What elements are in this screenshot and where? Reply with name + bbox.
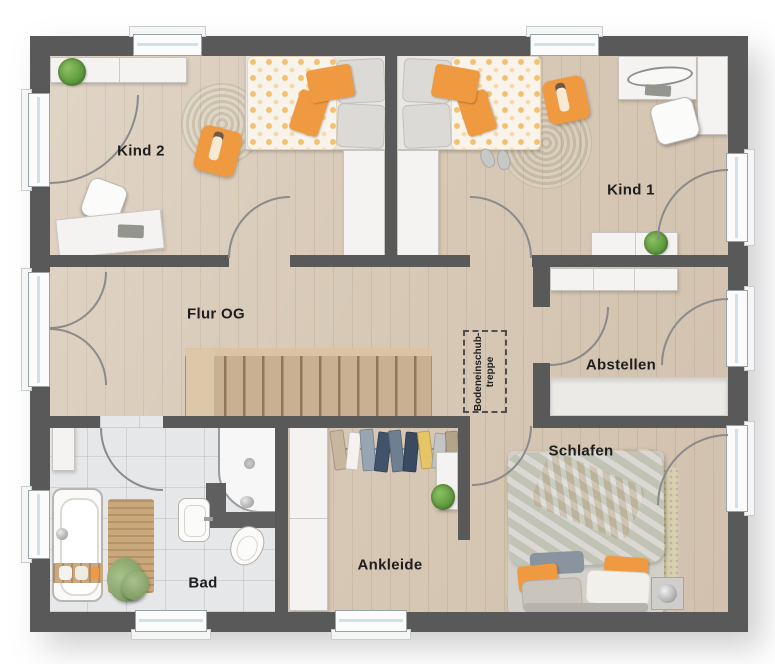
- wall-flur-abstellen-south: [533, 363, 550, 428]
- room-label-kind1: Kind 1: [607, 183, 655, 198]
- basin-faucet: [204, 517, 213, 521]
- abstellen-shelf: [550, 377, 728, 416]
- kind1-bed: [397, 53, 539, 150]
- staircase-landing: [186, 349, 214, 416]
- bathroom-cabinet: [52, 425, 75, 471]
- ankleide-plant: [431, 484, 455, 510]
- window-ankleide-bottom: [335, 610, 407, 632]
- room-label-abstellen: Abstellen: [586, 358, 656, 373]
- window-flur-left: [28, 272, 50, 387]
- kind2-pillow: [336, 103, 386, 149]
- kind2-wardrobe: [343, 150, 385, 257]
- sideboard-divider: [593, 269, 594, 290]
- ankleide-wardrobe: [289, 424, 328, 611]
- wall-ankleide-schlafen: [458, 416, 470, 540]
- caddy-towel: [59, 566, 72, 580]
- nightstand: [651, 577, 684, 610]
- attic-ladder-outline: Bodeneinschub- treppe: [463, 330, 507, 413]
- schlafen-double-bed: [508, 451, 664, 614]
- wall-flur-abstellen-north: [533, 267, 550, 307]
- kind2-bed: [245, 53, 387, 150]
- window-abstellen-right: [726, 290, 748, 367]
- basin-bowl: [184, 505, 206, 537]
- shower-drain: [244, 458, 255, 469]
- wall-kind2-kind1-south-mid: [290, 255, 470, 267]
- wall-kind2-kind1-divider: [385, 56, 397, 267]
- attic-ladder-label: Bodeneinschub- treppe: [473, 332, 497, 410]
- wall-kind2-south-west: [48, 255, 229, 267]
- nightstand-lamp: [658, 584, 677, 603]
- caddy-item: [91, 567, 99, 579]
- kind2-laptop: [118, 224, 144, 238]
- wardrobe-divider: [290, 518, 327, 519]
- kind2-plant: [58, 58, 86, 86]
- wall-abstellen-schlafen: [550, 416, 728, 428]
- room-label-kind2: Kind 2: [117, 144, 165, 159]
- wall-flur-south: [163, 416, 458, 428]
- shower-fixture: [240, 496, 254, 508]
- staircase-top-edge: [185, 348, 432, 356]
- caddy-towel: [75, 566, 88, 580]
- kind1-desk-return: [697, 56, 728, 135]
- window-kind1-right: [726, 153, 748, 242]
- window-kind1-top: [530, 34, 599, 56]
- room-label-ankleide: Ankleide: [358, 558, 423, 573]
- bathroom-door-threshold: [100, 416, 163, 428]
- sideboard-divider: [634, 269, 635, 290]
- kind1-floor-cushion-doll: [541, 74, 591, 126]
- schlafen-pillow-white: [585, 569, 651, 606]
- window-schlafen-right: [726, 425, 748, 512]
- wall-bad-north-west: [48, 416, 100, 428]
- floor-plan: Bodeneinschub- treppe Kind 2 Kind 1 Flur…: [0, 0, 775, 664]
- attic-ladder-label-line2: treppe: [485, 332, 497, 410]
- bath-vanity-counter: [206, 512, 277, 528]
- window-bad-left: [28, 490, 50, 559]
- room-label-bad: Bad: [188, 576, 217, 591]
- window-kind2-top: [133, 34, 202, 56]
- tub-faucet: [56, 528, 68, 540]
- abstellen-sideboard: [550, 268, 678, 291]
- schlafen-bed-foot: [524, 603, 648, 612]
- room-label-schlafen: Schlafen: [549, 444, 614, 459]
- kind1-pillow: [402, 103, 452, 149]
- toilet-bowl: [233, 532, 262, 564]
- window-bad-bottom: [135, 610, 207, 632]
- wall-bad-ankleide: [275, 428, 288, 612]
- room-label-flur: Flur OG: [187, 307, 245, 322]
- kind1-wardrobe: [397, 150, 439, 257]
- kind1-desk: [618, 56, 697, 100]
- kind1-keyboard: [645, 84, 672, 97]
- tub-caddy: [53, 563, 103, 583]
- window-kind2-left: [28, 93, 50, 187]
- staircase: [185, 348, 432, 417]
- washbasin: [178, 498, 210, 542]
- bathtub: [52, 488, 103, 602]
- kind1-plant: [644, 231, 668, 255]
- attic-ladder-label-line1: Bodeneinschub-: [473, 332, 485, 410]
- wall-kind1-south-east: [532, 255, 728, 267]
